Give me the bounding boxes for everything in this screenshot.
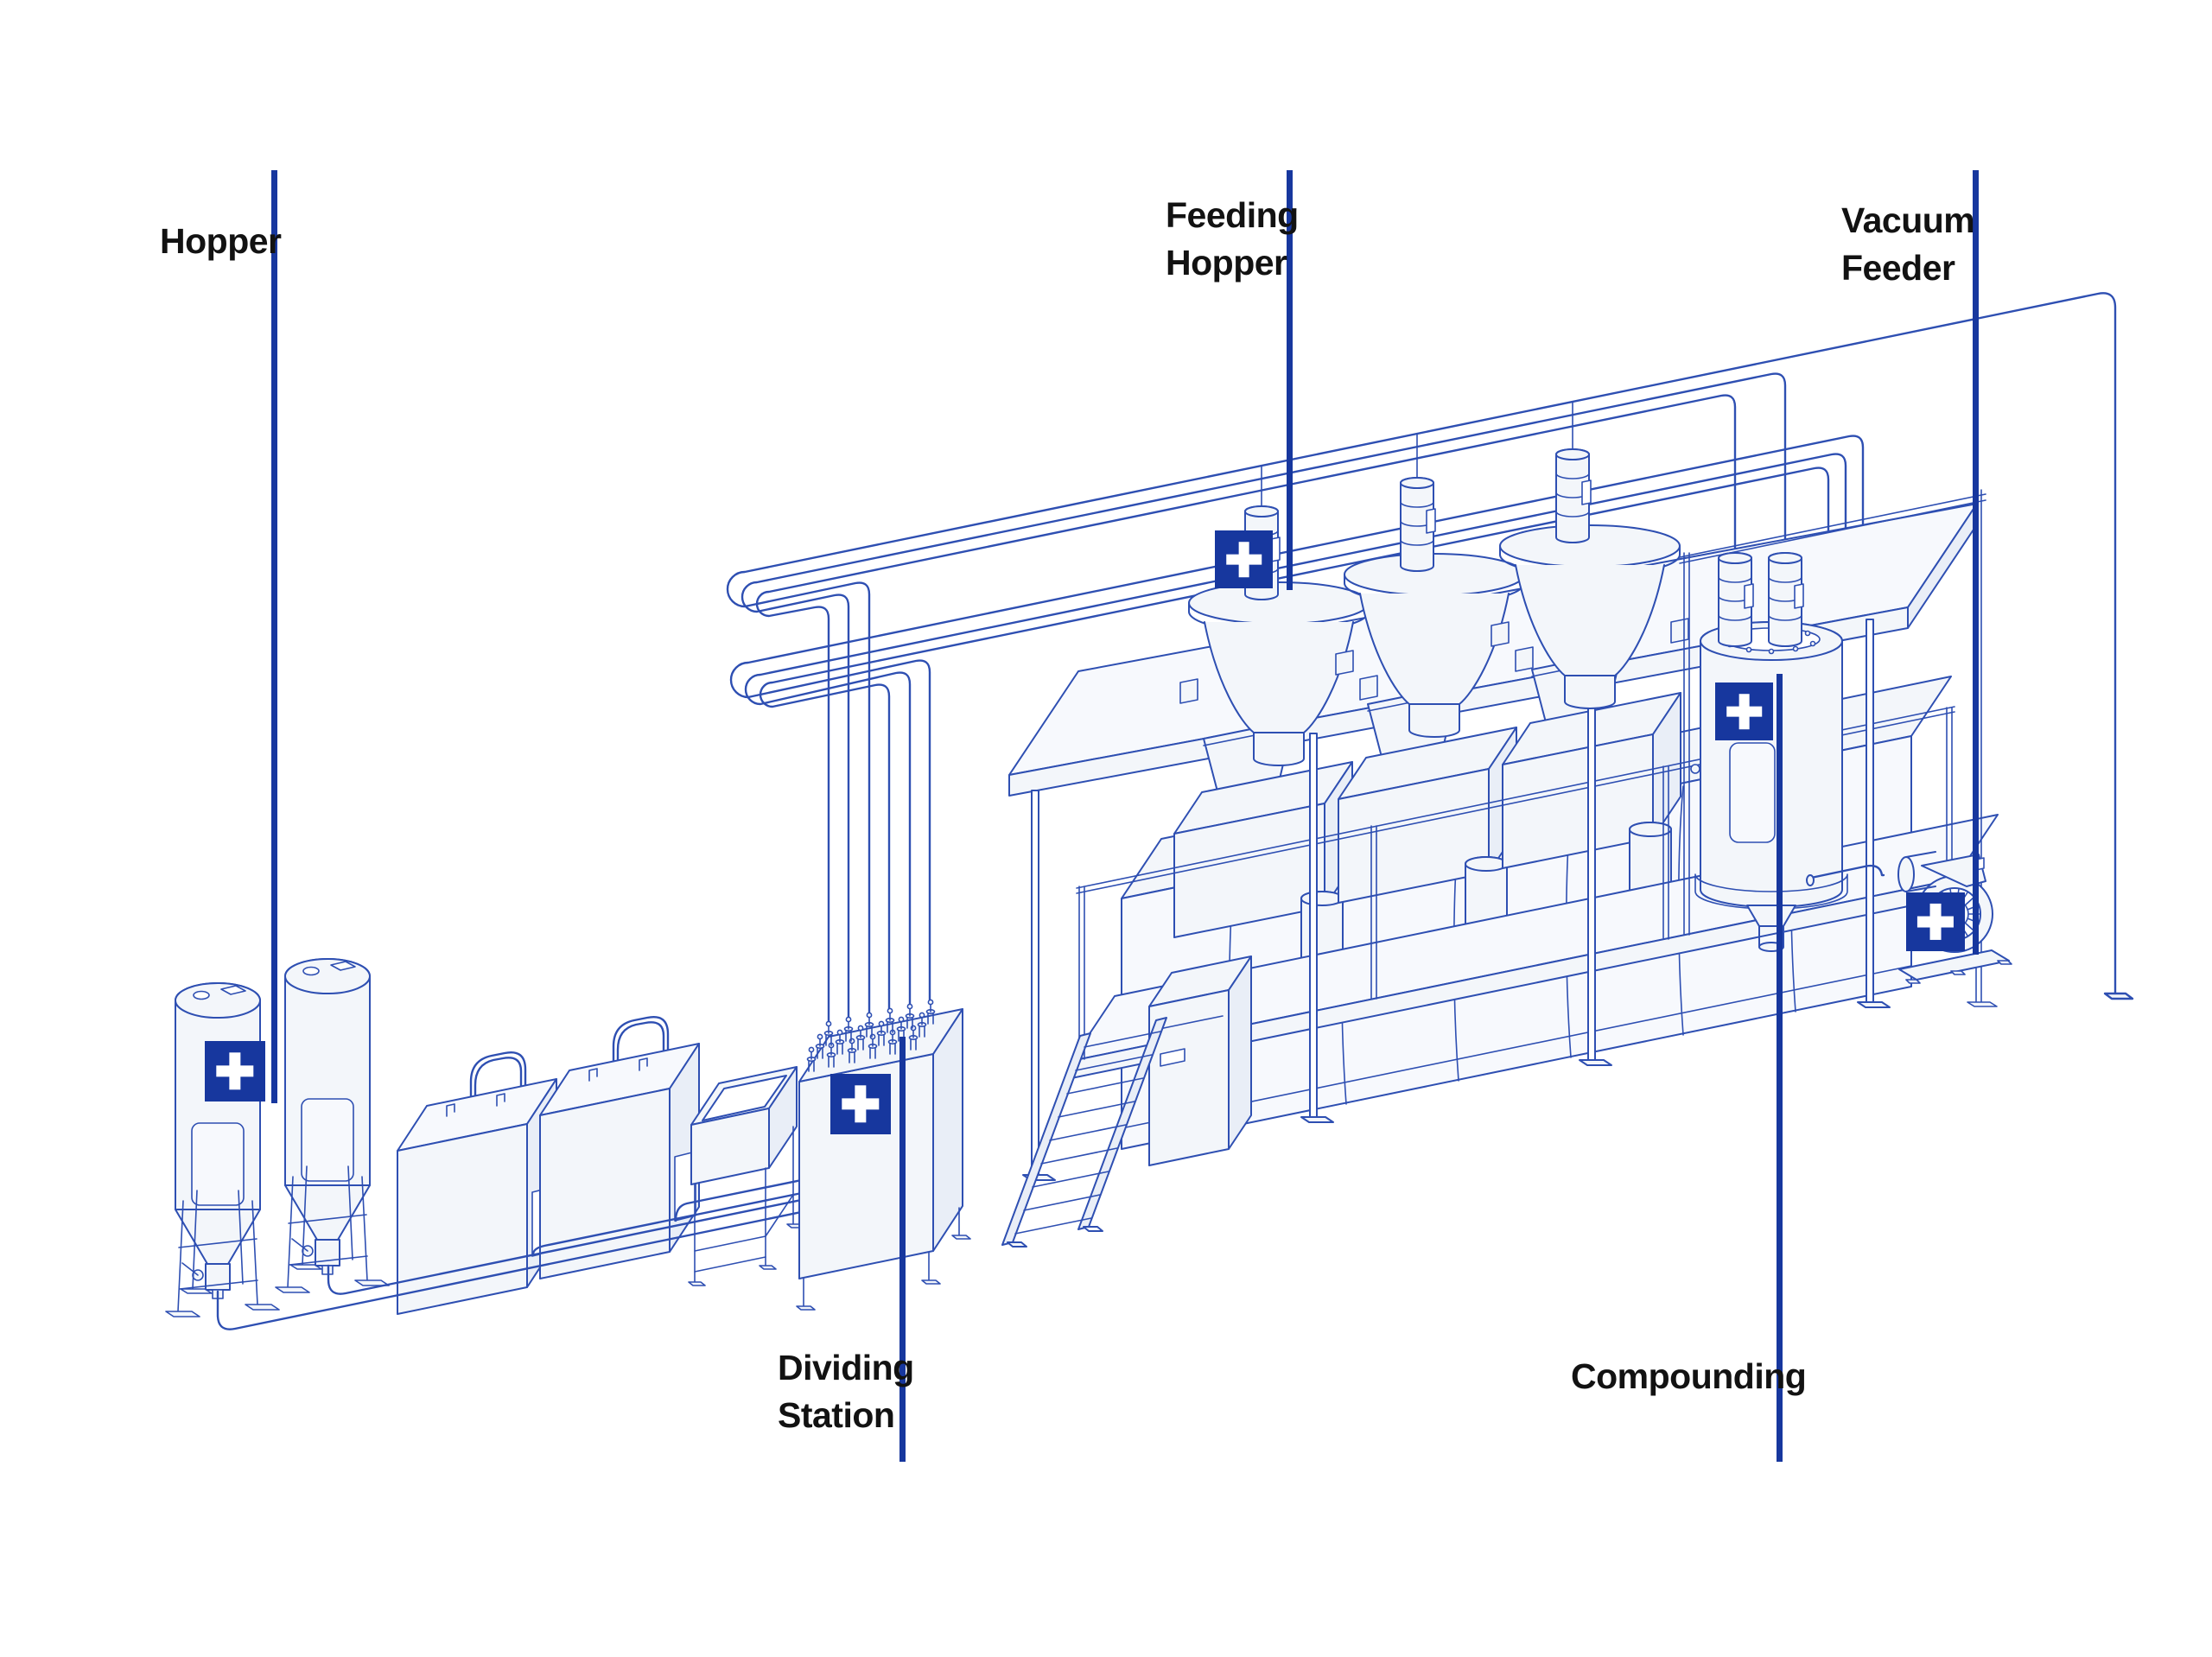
dividing-station-label: DividingStation [778, 1344, 914, 1439]
feeding-hopper-marker[interactable] [1215, 530, 1273, 588]
hopper-leader-line [271, 170, 277, 1103]
compounding-plant-diagram: HopperFeedingHopperVacuumFeederDividingS… [0, 0, 2212, 1657]
vacuum-feeder-marker[interactable] [1906, 892, 1965, 951]
hopper-marker[interactable] [205, 1041, 265, 1101]
dividing-station-marker[interactable] [830, 1074, 891, 1134]
compounding-leader-line [1777, 674, 1783, 1462]
hopper-label: Hopper [160, 218, 282, 265]
compounding-label: Compounding [1571, 1353, 1806, 1400]
callout-annotations: HopperFeedingHopperVacuumFeederDividingS… [0, 0, 2212, 1657]
feeding-hopper-label: FeedingHopper [1166, 192, 1299, 287]
vacuum-feeder-label: VacuumFeeder [1841, 197, 1974, 292]
compounding-marker[interactable] [1715, 682, 1773, 740]
